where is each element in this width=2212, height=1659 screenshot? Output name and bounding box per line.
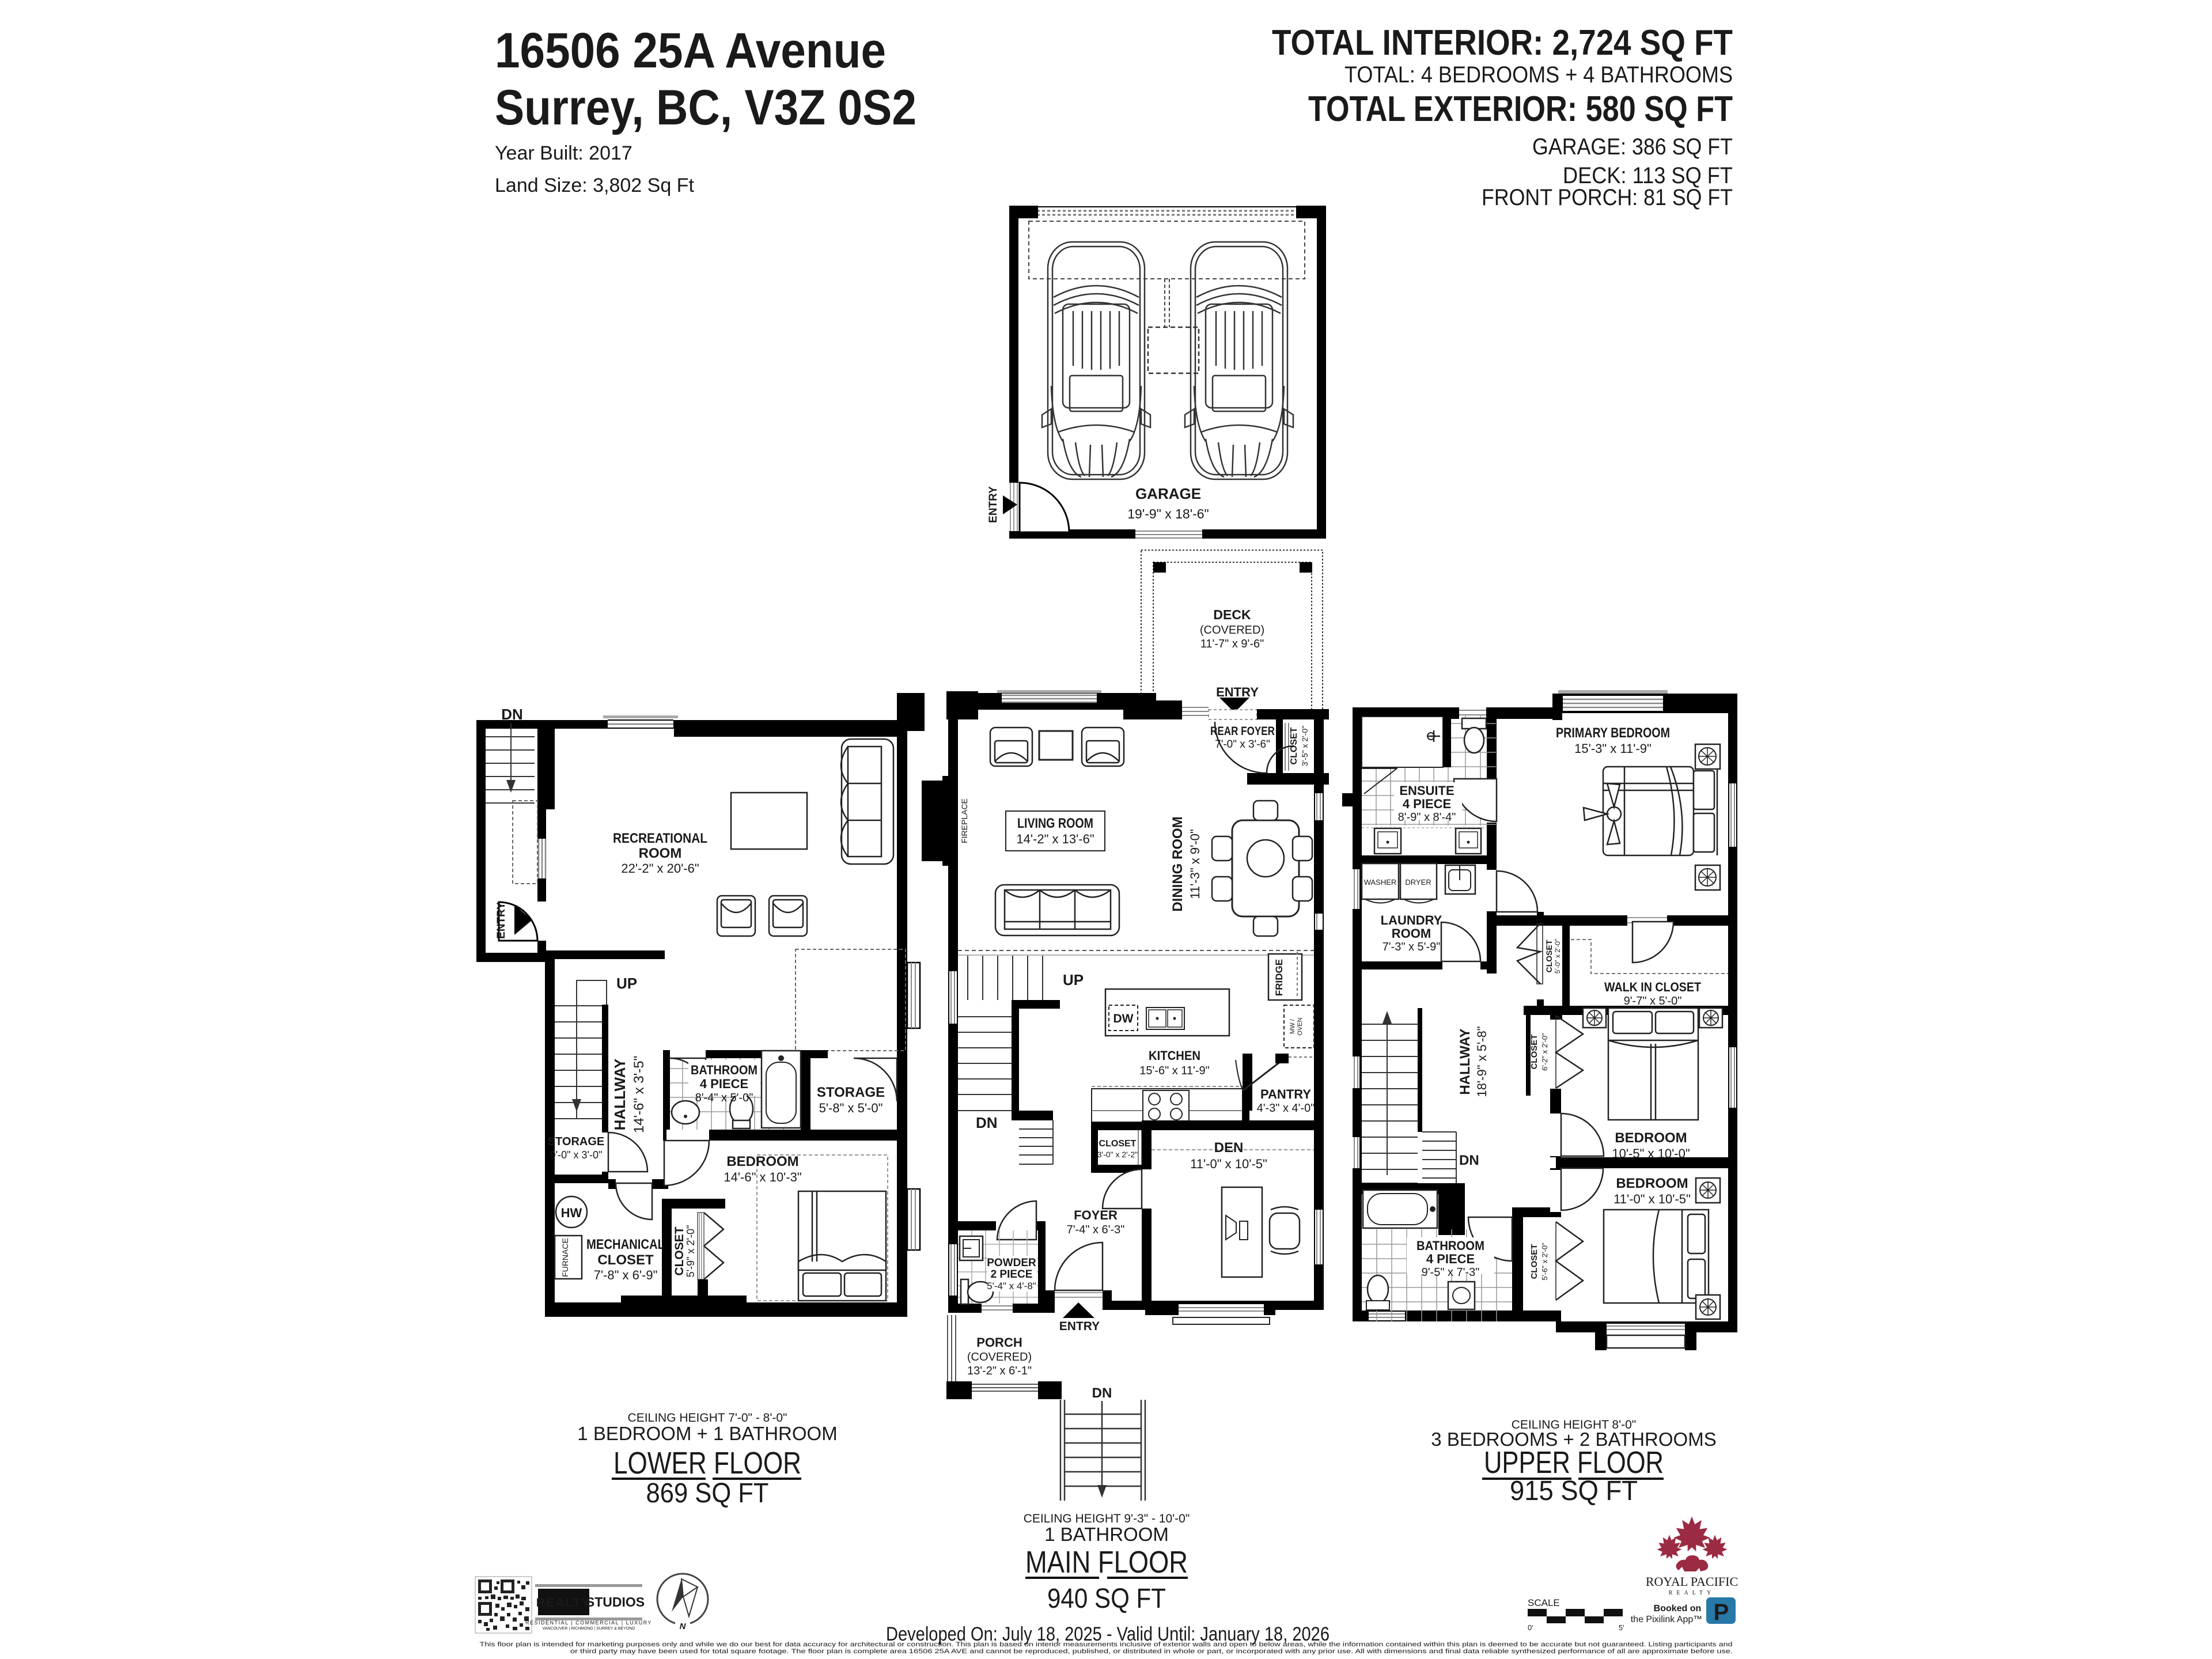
svg-text:KITCHEN: KITCHEN <box>1149 1048 1200 1063</box>
svg-text:8'-9" x 8'-4": 8'-9" x 8'-4" <box>1398 811 1456 824</box>
svg-text:DEN: DEN <box>1214 1140 1244 1156</box>
svg-text:7'-8" x 6'-9": 7'-8" x 6'-9" <box>594 1268 658 1282</box>
svg-text:TOTAL INTERIOR: 2,724 SQ FT: TOTAL INTERIOR: 2,724 SQ FT <box>1272 23 1733 63</box>
svg-text:0': 0' <box>1528 1623 1533 1632</box>
svg-text:5'-9" x 2'-0": 5'-9" x 2'-0" <box>685 1225 696 1278</box>
svg-text:8'-4" x 5'-0": 8'-4" x 5'-0" <box>695 1092 753 1104</box>
svg-text:REAR FOYER: REAR FOYER <box>1210 725 1275 738</box>
svg-text:4'-3" x 4'-0": 4'-3" x 4'-0" <box>1257 1102 1315 1115</box>
svg-text:or third party may have been u: or third party may have been used for to… <box>570 1648 1733 1655</box>
svg-text:DINING ROOM: DINING ROOM <box>1170 816 1185 911</box>
svg-text:UP: UP <box>1063 971 1084 988</box>
svg-text:P: P <box>1714 1600 1729 1625</box>
svg-text:14'-6" x 3'-5": 14'-6" x 3'-5" <box>631 1056 647 1133</box>
svg-text:3'-0" x 2'-2": 3'-0" x 2'-2" <box>1097 1150 1138 1159</box>
svg-text:TOTAL: 4 BEDROOMS + 4 BATHROOM: TOTAL: 4 BEDROOMS + 4 BATHROOMS <box>1344 62 1733 88</box>
svg-text:MECHANICAL: MECHANICAL <box>586 1237 665 1252</box>
svg-text:PORCH: PORCH <box>976 1335 1022 1350</box>
svg-text:This floor plan is intended fo: This floor plan is intended for marketin… <box>480 1641 1733 1648</box>
svg-text:1 BEDROOM + 1 BATHROOM: 1 BEDROOM + 1 BATHROOM <box>577 1423 837 1444</box>
svg-text:11'-0" x 10'-5": 11'-0" x 10'-5" <box>1613 1192 1691 1206</box>
svg-text:940 SQ FT: 940 SQ FT <box>1047 1584 1166 1614</box>
svg-text:BEDROOM: BEDROOM <box>1616 1176 1688 1191</box>
svg-text:RECREATIONAL: RECREATIONAL <box>613 831 707 846</box>
svg-text:UP: UP <box>616 975 637 992</box>
svg-text:15'-6" x 11'-9": 15'-6" x 11'-9" <box>1139 1065 1210 1077</box>
svg-text:4 PIECE: 4 PIECE <box>1426 1252 1475 1266</box>
svg-text:DN: DN <box>1092 1385 1112 1401</box>
svg-text:BEDROOM: BEDROOM <box>726 1154 798 1169</box>
svg-text:LAUNDRY: LAUNDRY <box>1381 913 1442 927</box>
svg-text:OVEN: OVEN <box>1297 1017 1304 1035</box>
svg-text:Booked on: Booked on <box>1654 1604 1702 1613</box>
svg-text:CLOSET: CLOSET <box>673 1226 686 1275</box>
svg-text:11'-7" x 9'-6": 11'-7" x 9'-6" <box>1200 638 1264 650</box>
svg-text:HW: HW <box>561 1206 582 1220</box>
svg-text:STUDIOS: STUDIOS <box>586 1594 645 1609</box>
svg-text:4 PIECE: 4 PIECE <box>1403 797 1451 811</box>
svg-text:4 PIECE: 4 PIECE <box>700 1077 748 1091</box>
svg-text:16506 25A Avenue: 16506 25A Avenue <box>495 23 886 78</box>
svg-text:FOYER: FOYER <box>1074 1208 1118 1222</box>
svg-text:BATHROOM: BATHROOM <box>1416 1238 1484 1253</box>
svg-text:REALTY: REALTY <box>1669 1590 1715 1596</box>
svg-text:10'-5" x 10'-0": 10'-5" x 10'-0" <box>1612 1146 1690 1161</box>
svg-text:VANCOUVER | RICHMOND | SURREY: VANCOUVER | RICHMOND | SURREY & BEYOND <box>543 1627 635 1631</box>
svg-text:9'-0" x 3'-0": 9'-0" x 3'-0" <box>550 1149 603 1161</box>
svg-text:22'-2" x 20'-6": 22'-2" x 20'-6" <box>621 861 699 876</box>
svg-text:ENTRY: ENTRY <box>1059 1320 1100 1333</box>
svg-text:STORAGE: STORAGE <box>817 1085 885 1100</box>
svg-text:11'-3" x 9'-0": 11'-3" x 9'-0" <box>1188 829 1202 899</box>
svg-text:915 SQ FT: 915 SQ FT <box>1510 1476 1638 1506</box>
svg-text:5'-6" x 2'-0": 5'-6" x 2'-0" <box>1540 1243 1549 1281</box>
svg-text:GARAGE: GARAGE <box>1135 485 1201 502</box>
svg-text:DN: DN <box>1459 1153 1479 1168</box>
svg-text:STORAGE: STORAGE <box>548 1135 605 1148</box>
svg-text:REALTY: REALTY <box>536 1596 590 1609</box>
svg-text:FIREPLACE: FIREPLACE <box>960 798 969 843</box>
svg-text:CLOSET: CLOSET <box>597 1252 654 1268</box>
svg-text:FRONT PORCH: 81 SQ FT: FRONT PORCH: 81 SQ FT <box>1482 185 1733 210</box>
svg-text:MW /: MW / <box>1289 1018 1296 1034</box>
svg-text:18'-9" x 5'-8": 18'-9" x 5'-8" <box>1475 1026 1489 1097</box>
svg-text:CLOSET: CLOSET <box>1529 1035 1539 1070</box>
svg-text:ENTRY: ENTRY <box>987 486 999 523</box>
svg-text:DW: DW <box>1113 1012 1134 1025</box>
svg-text:6'-2" x 2'-0": 6'-2" x 2'-0" <box>1540 1033 1549 1071</box>
svg-text:UPPER FLOOR: UPPER FLOOR <box>1484 1445 1664 1480</box>
svg-text:Land Size: 3,802 Sq Ft: Land Size: 3,802 Sq Ft <box>495 175 694 196</box>
svg-text:5'-8" x 5'-0": 5'-8" x 5'-0" <box>819 1101 883 1115</box>
svg-text:ENSUITE: ENSUITE <box>1399 783 1454 798</box>
svg-text:N: N <box>680 1622 687 1631</box>
svg-text:3'-5" x 2'-0": 3'-5" x 2'-0" <box>1300 726 1309 767</box>
svg-text:RESIDENTIAL | COMMERCIAL | LUX: RESIDENTIAL | COMMERCIAL | LUXURY <box>525 1620 652 1626</box>
svg-text:GARAGE: 386 SQ FT: GARAGE: 386 SQ FT <box>1532 134 1733 160</box>
svg-text:ENTRY: ENTRY <box>495 902 507 939</box>
svg-text:DRYER: DRYER <box>1405 878 1431 887</box>
svg-text:14'-6" x 10'-3": 14'-6" x 10'-3" <box>724 1170 801 1184</box>
svg-text:14'-2" x 13'-6": 14'-2" x 13'-6" <box>1016 832 1094 846</box>
svg-text:ENTRY: ENTRY <box>1216 685 1259 699</box>
svg-text:Year Built: 2017: Year Built: 2017 <box>495 142 632 164</box>
svg-text:1 BATHROOM: 1 BATHROOM <box>1044 1524 1169 1545</box>
svg-text:CLOSET: CLOSET <box>1099 1139 1137 1149</box>
svg-text:ROOM: ROOM <box>1392 926 1431 941</box>
svg-text:FURNACE: FURNACE <box>560 1238 570 1277</box>
svg-text:POWDER: POWDER <box>987 1257 1036 1269</box>
svg-text:2 PIECE: 2 PIECE <box>991 1268 1033 1281</box>
svg-text:19'-9" x 18'-6": 19'-9" x 18'-6" <box>1127 506 1209 521</box>
svg-text:5'-0" x 2'-0": 5'-0" x 2'-0" <box>1554 939 1562 974</box>
svg-text:MAIN FLOOR: MAIN FLOOR <box>1025 1545 1188 1580</box>
svg-text:5'-4" x 4'-8": 5'-4" x 4'-8" <box>987 1281 1036 1291</box>
svg-text:DN: DN <box>501 706 523 723</box>
svg-text:FRIDGE: FRIDGE <box>1274 959 1285 996</box>
svg-text:SCALE: SCALE <box>1528 1597 1560 1608</box>
svg-text:9'-7" x 5'-0": 9'-7" x 5'-0" <box>1624 995 1682 1007</box>
svg-text:CLOSET: CLOSET <box>1529 1244 1539 1279</box>
svg-text:869 SQ FT: 869 SQ FT <box>646 1478 769 1509</box>
svg-text:TOTAL EXTERIOR: 580 SQ FT: TOTAL EXTERIOR: 580 SQ FT <box>1308 89 1733 129</box>
svg-text:7'-3" x 5'-9": 7'-3" x 5'-9" <box>1382 941 1441 953</box>
svg-text:CLOSET: CLOSET <box>1289 727 1299 764</box>
svg-text:13'-2" x 6'-1": 13'-2" x 6'-1" <box>967 1365 1032 1377</box>
svg-text:WASHER: WASHER <box>1364 878 1397 887</box>
svg-text:PRIMARY BEDROOM: PRIMARY BEDROOM <box>1556 725 1670 741</box>
svg-text:CLOSET: CLOSET <box>1544 940 1554 972</box>
svg-text:Surrey, BC, V3Z 0S2: Surrey, BC, V3Z 0S2 <box>495 80 916 135</box>
svg-text:9'-5" x 7'-3": 9'-5" x 7'-3" <box>1422 1266 1480 1279</box>
svg-text:11'-0" x 10'-5": 11'-0" x 10'-5" <box>1190 1157 1267 1171</box>
svg-text:WALK IN CLOSET: WALK IN CLOSET <box>1604 980 1701 994</box>
svg-text:ROYAL PACIFIC: ROYAL PACIFIC <box>1646 1574 1738 1589</box>
svg-text:LOWER FLOOR: LOWER FLOOR <box>613 1446 801 1480</box>
svg-text:BEDROOM: BEDROOM <box>1615 1130 1687 1146</box>
svg-text:(COVERED): (COVERED) <box>1200 624 1264 637</box>
svg-text:7'-4" x 6'-3": 7'-4" x 6'-3" <box>1067 1224 1125 1236</box>
svg-text:DECK: DECK <box>1213 607 1251 622</box>
svg-text:15'-3" x 11'-9": 15'-3" x 11'-9" <box>1574 741 1652 756</box>
svg-text:(COVERED): (COVERED) <box>967 1351 1032 1363</box>
svg-text:HALLWAY: HALLWAY <box>611 1059 628 1131</box>
svg-text:BATHROOM: BATHROOM <box>691 1063 757 1077</box>
svg-text:PANTRY: PANTRY <box>1260 1087 1311 1101</box>
svg-text:ROOM: ROOM <box>639 846 682 861</box>
svg-text:the Pixilink App™: the Pixilink App™ <box>1631 1615 1703 1624</box>
svg-text:5': 5' <box>1619 1623 1624 1632</box>
svg-text:DN: DN <box>976 1114 998 1131</box>
svg-text:LIVING ROOM: LIVING ROOM <box>1017 816 1093 831</box>
svg-text:HALLWAY: HALLWAY <box>1457 1028 1473 1094</box>
